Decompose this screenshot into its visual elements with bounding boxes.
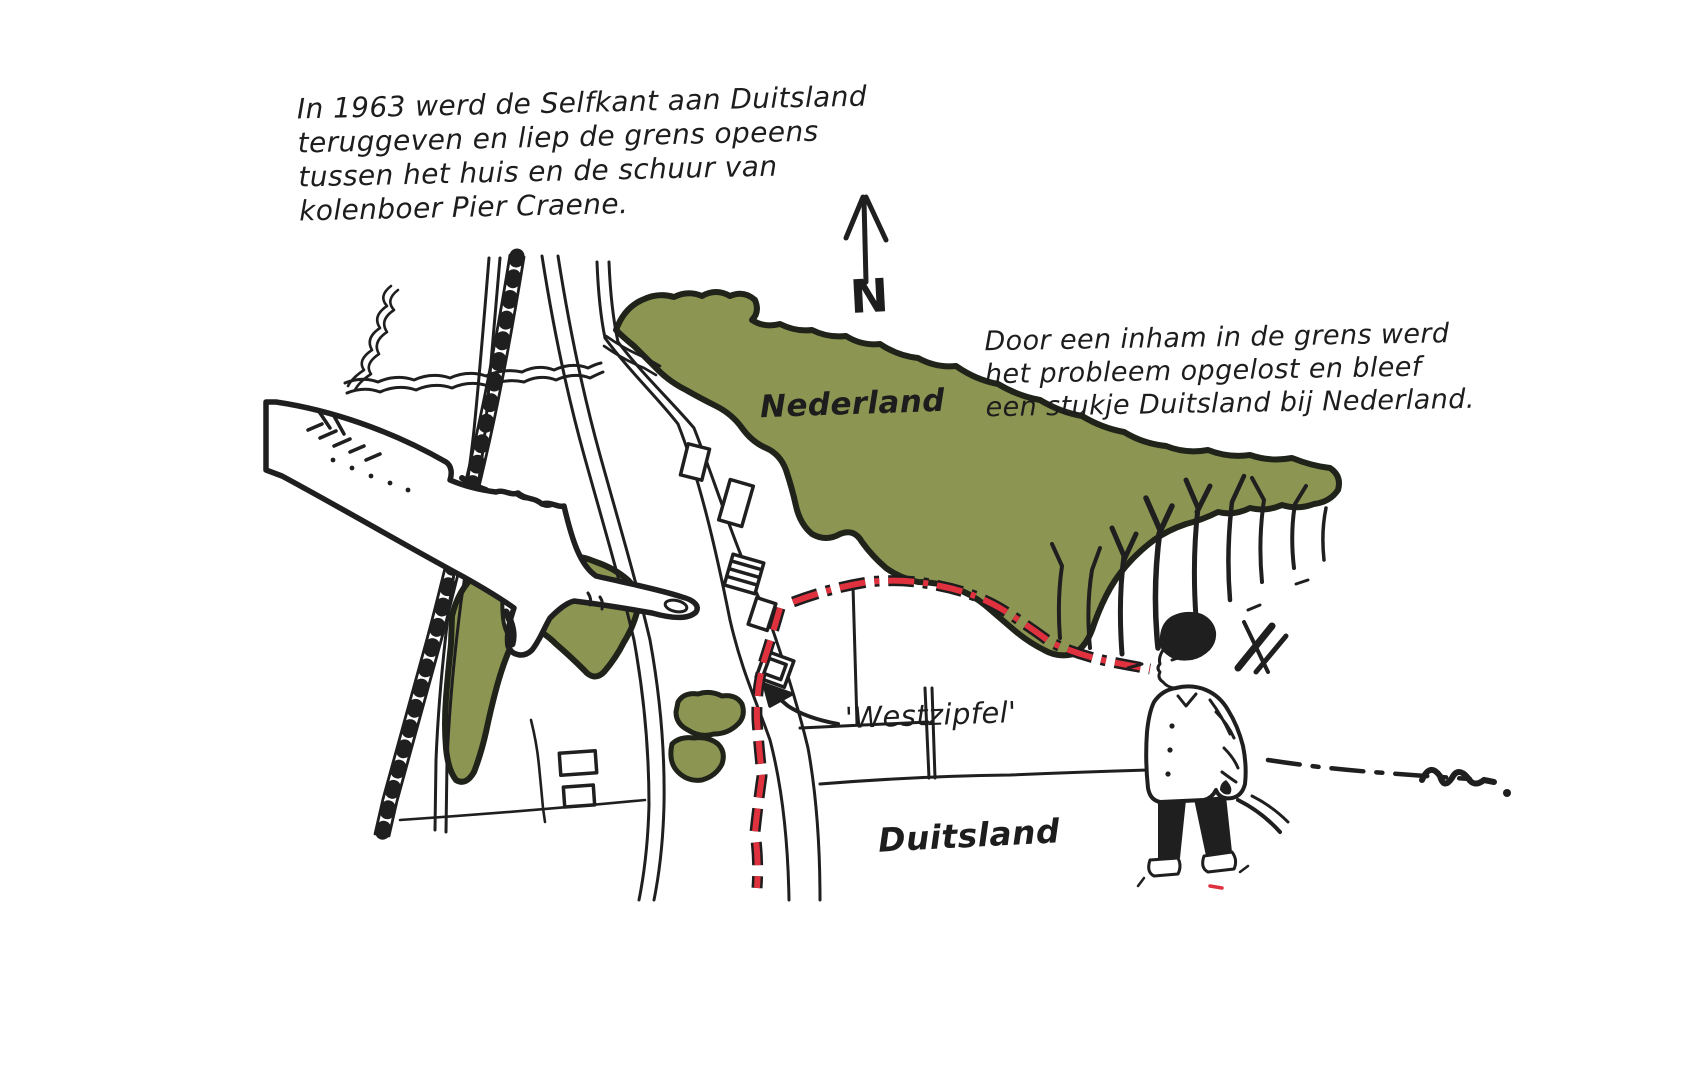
border-line-vertical	[755, 608, 780, 888]
person-hair	[1160, 612, 1216, 661]
westzipfel-arrow	[770, 690, 838, 724]
artist-signature	[1422, 770, 1511, 797]
label-compass-n: N	[849, 267, 891, 325]
label-westzipfel: 'Westzipfel'	[844, 695, 1017, 736]
label-nederland: Nederland	[759, 383, 945, 427]
person-trousers	[1158, 796, 1232, 860]
person-jacket	[1146, 686, 1245, 802]
hatched-building	[724, 554, 764, 594]
standing-person	[1138, 612, 1248, 888]
forest-patch-small-2	[671, 738, 723, 781]
fence-sketch-marks	[1238, 622, 1288, 832]
caption-right: Door een inham in de grens werd het prob…	[984, 318, 1475, 425]
selfkant-map-illustration: In 1963 werd de Selfkant aan Duitsland t…	[0, 0, 1701, 1081]
forest-patch-small-1	[676, 692, 743, 735]
caption-top-left: In 1963 werd de Selfkant aan Duitsland t…	[297, 80, 870, 230]
